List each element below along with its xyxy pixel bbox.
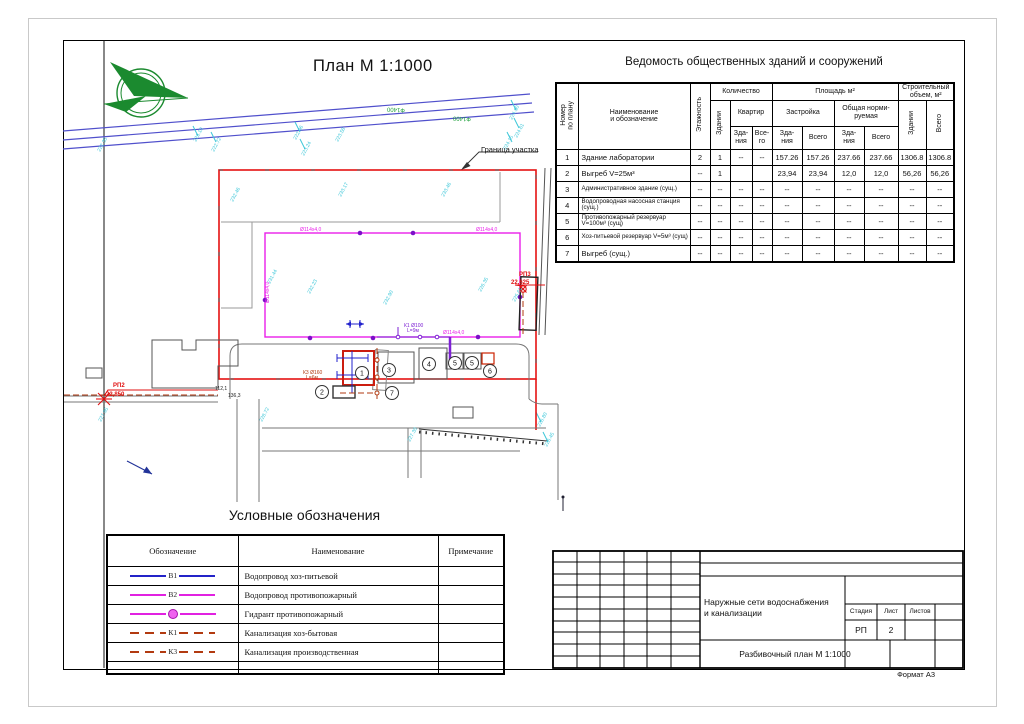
building-marker-number: 4 (427, 362, 431, 369)
stamp-sheets-value (905, 620, 935, 639)
value-cell: -- (864, 245, 898, 262)
value-cell: -- (898, 197, 926, 213)
col-area: Площадь м² (772, 83, 898, 100)
col-quantity: Количество (710, 83, 772, 100)
value-cell: 157.26 (772, 149, 802, 165)
plan-label: 222.72 (210, 136, 223, 153)
value-cell: 2 (690, 149, 710, 165)
value-cell: -- (802, 229, 834, 245)
col-built-total: Всего (802, 126, 834, 149)
plan-label: 227.95 (97, 406, 110, 423)
plan-label: 232.46 (229, 186, 242, 203)
row-number: 2 (556, 165, 578, 181)
building-marker-number: 7 (390, 391, 394, 398)
value-cell: -- (864, 213, 898, 229)
value-cell: -- (690, 245, 710, 262)
col-name: Наименование и обозначение (578, 83, 690, 149)
stamp-project-name: Наружные сети водоснабжения и канализаци… (704, 576, 832, 640)
value-cell: -- (898, 229, 926, 245)
legend-note (438, 643, 504, 662)
plan-label: 226.80 (536, 411, 549, 428)
stamp-stage-label: Стадия (845, 605, 877, 618)
value-cell: -- (730, 229, 752, 245)
legend-symbol: К3 (107, 643, 238, 662)
line-sample (180, 613, 216, 615)
value-cell: -- (752, 229, 772, 245)
col-built-up: Застройка (772, 100, 834, 126)
line-sample (130, 651, 166, 653)
vedomost-title: Ведомость общественных зданий и сооружен… (555, 56, 953, 68)
plan-label: 232.90 (382, 289, 395, 306)
legend-name: Канализация хоз-бытовая (238, 624, 438, 643)
value-cell: -- (802, 181, 834, 197)
value-cell: 1 (710, 149, 730, 165)
col-number: Номер по плану (556, 83, 578, 149)
plan-label: 226.35 (477, 276, 490, 293)
line-sample (179, 651, 215, 653)
line-code: К1 (168, 629, 177, 637)
value-cell: -- (898, 181, 926, 197)
row-number: 6 (556, 229, 578, 245)
value-cell: -- (772, 181, 802, 197)
plan-label: 22,850 (106, 392, 125, 398)
row-number: 7 (556, 245, 578, 262)
plan-label: 222.35 (96, 136, 109, 153)
value-cell: 23,94 (772, 165, 802, 181)
value-cell: -- (690, 165, 710, 181)
value-cell: -- (710, 229, 730, 245)
value-cell: -- (864, 181, 898, 197)
line-code: В2 (168, 591, 177, 599)
value-cell: -- (752, 181, 772, 197)
legend-row: Гидрант противопожарный (107, 605, 504, 624)
value-cell: 56,26 (926, 165, 954, 181)
plan-label: 228.72 (258, 406, 271, 423)
value-cell: 237.66 (834, 149, 864, 165)
value-cell: 1 (710, 165, 730, 181)
value-cell: -- (864, 197, 898, 213)
value-cell: 56,26 (898, 165, 926, 181)
col-built-bld: Зда- ния (772, 126, 802, 149)
buildings-schedule-table: Номер по плану Наименование и обозначени… (555, 82, 955, 263)
value-cell: -- (730, 149, 752, 165)
legend-name: Водопровод противопожарный (238, 586, 438, 605)
building-name: Выгреб (сущ.) (578, 245, 690, 262)
legend-name: Водопровод хоз-питьевой (238, 567, 438, 586)
value-cell: -- (772, 213, 802, 229)
legend-symbol (107, 662, 238, 674)
legend-note (438, 624, 504, 643)
legend-name (238, 662, 438, 674)
value-cell: -- (710, 245, 730, 262)
col-norm-bld: Зда- ния (834, 126, 864, 149)
building-name: Административное здание (сущ.) (578, 181, 690, 197)
building-name: Выгреб V=25м³ (578, 165, 690, 181)
plan-label: 232.23 (306, 278, 319, 295)
building-name: Здание лаборатории (578, 149, 690, 165)
value-cell: -- (710, 213, 730, 229)
value-cell: 1306.8 (926, 149, 954, 165)
value-cell: -- (926, 181, 954, 197)
value-cell: 12,0 (834, 165, 864, 181)
value-cell: -- (752, 197, 772, 213)
building-marker-number: 5 (470, 361, 474, 368)
line-sample (179, 575, 215, 577)
value-cell: -- (690, 213, 710, 229)
plan-label: Ф1400 (452, 114, 471, 121)
legend-title: Условные обозначения (106, 507, 503, 523)
value-cell: -- (772, 245, 802, 262)
plan-label: Ф1400 (386, 105, 405, 112)
row-number: 4 (556, 197, 578, 213)
value-cell: 157.26 (802, 149, 834, 165)
legend-row: В2Водопровод противопожарный (107, 586, 504, 605)
legend-symbol (107, 605, 238, 624)
col-apt-bld: Зда- ния (730, 126, 752, 149)
col-floors: Этажность (690, 83, 710, 149)
line-sample (130, 575, 166, 577)
value-cell: -- (802, 213, 834, 229)
schedule-row: 6Хоз-питьевой резервуар V=5м³ (сущ)-----… (556, 229, 954, 245)
schedule-row: 7Выгреб (сущ.)-------------------- (556, 245, 954, 262)
value-cell: -- (690, 229, 710, 245)
value-cell: -- (710, 197, 730, 213)
legend-name: Канализация производственная (238, 643, 438, 662)
legend-note (438, 567, 504, 586)
legend-row: К1Канализация хоз-бытовая (107, 624, 504, 643)
line-code: К3 (168, 648, 177, 656)
plan-label: Ø114х4,0 (476, 227, 498, 233)
value-cell (752, 165, 772, 181)
col-apartments: Квартир (730, 100, 772, 126)
line-sample (179, 632, 215, 634)
value-cell: -- (898, 213, 926, 229)
value-cell: -- (926, 213, 954, 229)
plan-label: РП3 (519, 272, 531, 278)
line-sample (179, 594, 215, 596)
plan-label: РП2 (113, 383, 125, 389)
value-cell: 237.66 (864, 149, 898, 165)
building-name: Водопроводная насосная станция (сущ.) (578, 197, 690, 213)
value-cell: -- (710, 181, 730, 197)
legend-note (438, 586, 504, 605)
value-cell: 1306.8 (898, 149, 926, 165)
building-name: Хоз-питьевой резервуар V=5м³ (сущ) (578, 229, 690, 245)
plan-label: 136,3 (228, 393, 241, 399)
schedule-row: 3Административное здание (сущ.)---------… (556, 181, 954, 197)
col-volume: Строительный объем, м² (898, 83, 954, 100)
stamp-sheet-value: 2 (877, 620, 905, 639)
col-buildings: Здании (710, 100, 730, 149)
value-cell: -- (802, 197, 834, 213)
value-cell: -- (834, 229, 864, 245)
value-cell: 12,0 (864, 165, 898, 181)
plan-label: L=9м (407, 328, 419, 334)
plan-label: L=6м (306, 375, 318, 381)
legend-col-note: Примечание (438, 535, 504, 567)
line-sample (130, 632, 166, 634)
building-marker-number: 6 (488, 369, 492, 376)
drawing-page: РП222,850РП322,625Ф1400Ф1400К1 Ø100L=9мК… (0, 0, 1024, 724)
legend-table: Обозначение Наименование Примечание В1Во… (106, 534, 505, 675)
legend-row (107, 662, 504, 674)
value-cell: -- (926, 197, 954, 213)
col-apt-total: Все- го (752, 126, 772, 149)
plan-label: 22,625 (511, 280, 530, 286)
value-cell: -- (752, 149, 772, 165)
value-cell: -- (752, 245, 772, 262)
stamp-sheet-label: Лист (877, 605, 905, 618)
value-cell: -- (730, 181, 752, 197)
row-number: 1 (556, 149, 578, 165)
legend-symbol: В1 (107, 567, 238, 586)
format-label: Формат А3 (855, 670, 935, 679)
line-code: В1 (168, 572, 177, 580)
value-cell: 23,94 (802, 165, 834, 181)
building-marker-number: 3 (387, 368, 391, 375)
value-cell: -- (834, 197, 864, 213)
plan-label: 224.61 (513, 122, 526, 139)
value-cell: -- (834, 213, 864, 229)
value-cell: -- (752, 213, 772, 229)
plan-label: 222.96 (292, 124, 305, 141)
schedule-row: 5Противопожарный резервуар V=100м³ (сущ)… (556, 213, 954, 229)
north-arrow-icon (104, 62, 188, 117)
plan-label: 225.61 (511, 286, 524, 303)
plan-label: 233.46 (440, 181, 453, 198)
row-number: 3 (556, 181, 578, 197)
value-cell: -- (730, 197, 752, 213)
value-cell: -- (730, 245, 752, 262)
stamp-stage-value: РП (845, 620, 877, 639)
legend-col-symbol: Обозначение (107, 535, 238, 567)
schedule-row: 1Здание лаборатории21----157.26157.26237… (556, 149, 954, 165)
building-marker-number: 1 (360, 371, 364, 378)
building-marker-number: 2 (320, 390, 324, 397)
value-cell: -- (730, 213, 752, 229)
value-cell: -- (834, 245, 864, 262)
plan-label: Ø114х4,0 (443, 330, 465, 336)
plan-label: 231.44 (266, 268, 279, 285)
stamp-sheets-label: Листов (905, 605, 935, 618)
site-boundary-label: Граница участка (481, 145, 539, 154)
value-cell: -- (772, 229, 802, 245)
legend-col-name: Наименование (238, 535, 438, 567)
schedule-row: 4Водопроводная насосная станция (сущ.)--… (556, 197, 954, 213)
legend-row: К3Канализация производственная (107, 643, 504, 662)
legend-symbol: В2 (107, 586, 238, 605)
plan-label: 112,1 (215, 386, 227, 392)
value-cell: -- (690, 181, 710, 197)
col-normed: Общая норми- руемая (834, 100, 898, 126)
legend-note (438, 605, 504, 624)
building-marker-number: 5 (453, 361, 457, 368)
stamp-doc-title: Разбивочный план М 1:1000 (700, 640, 890, 667)
col-vol-total: Всего (926, 100, 954, 149)
legend-name: Гидрант противопожарный (238, 605, 438, 624)
legend-row: В1Водопровод хоз-питьевой (107, 567, 504, 586)
legend-note (438, 662, 504, 674)
hydrant-icon (168, 609, 178, 619)
plan-label: 223.58 (334, 126, 347, 143)
value-cell: -- (772, 197, 802, 213)
plan-label: 233.17 (337, 181, 350, 198)
building-name: Противопожарный резервуар V=100м³ (сущ) (578, 213, 690, 229)
plan-label: Ø114х4,0 (300, 227, 322, 233)
col-vol-buildings: Здании (898, 100, 926, 149)
row-number: 5 (556, 213, 578, 229)
value-cell: -- (864, 229, 898, 245)
plan-label: 226.45 (543, 431, 556, 448)
value-cell: -- (834, 181, 864, 197)
schedule-row: 2Выгреб V=25м³--123,9423,9412,012,056,26… (556, 165, 954, 181)
legend-symbol: К1 (107, 624, 238, 643)
value-cell: -- (926, 245, 954, 262)
value-cell: -- (898, 245, 926, 262)
value-cell: -- (926, 229, 954, 245)
line-sample (130, 613, 166, 615)
value-cell: -- (802, 245, 834, 262)
value-cell (730, 165, 752, 181)
plan-title: План М 1:1000 (313, 57, 433, 76)
line-sample (130, 594, 166, 596)
value-cell: -- (690, 197, 710, 213)
col-norm-total: Всего (864, 126, 898, 149)
